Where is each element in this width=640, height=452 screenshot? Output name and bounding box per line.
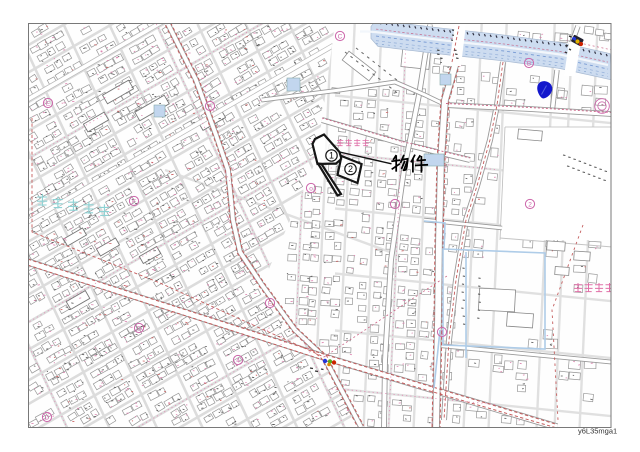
svg-text:E: E (268, 300, 273, 307)
svg-text:1: 1 (393, 201, 397, 208)
svg-text:y6L35mga1: y6L35mga1 (578, 427, 617, 436)
svg-text:2: 2 (348, 164, 353, 174)
svg-text:C: C (338, 33, 343, 40)
svg-text:1: 1 (440, 329, 444, 336)
svg-text:G: G (136, 325, 141, 332)
svg-text:D: D (45, 414, 50, 421)
svg-text:F: F (132, 198, 136, 205)
svg-text:1: 1 (329, 151, 334, 161)
svg-text:o: o (309, 185, 313, 192)
svg-text:4: 4 (236, 357, 240, 364)
svg-text:E: E (46, 100, 51, 107)
svg-text:2: 2 (528, 201, 532, 208)
svg-text:B: B (527, 60, 531, 67)
svg-text:A: A (208, 103, 213, 110)
